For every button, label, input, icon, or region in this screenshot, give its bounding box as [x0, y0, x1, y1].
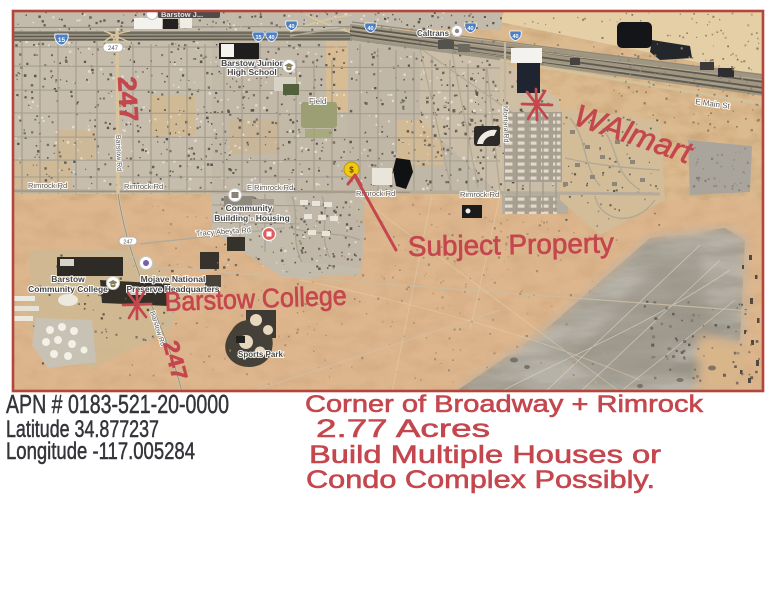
svg-text:2.77 Acres: 2.77 Acres — [316, 415, 490, 443]
svg-text:E Rimrock Rd: E Rimrock Rd — [247, 183, 293, 192]
svg-text:Montara Rd: Montara Rd — [501, 106, 509, 143]
svg-text:Field: Field — [309, 97, 326, 106]
svg-text:Mojave National: Mojave National — [141, 274, 206, 284]
svg-text:Community: Community — [226, 203, 273, 213]
svg-text:Rimrock Rd: Rimrock Rd — [124, 182, 163, 191]
svg-text:Rimrock Rd: Rimrock Rd — [460, 190, 499, 199]
svg-text:Barstow: Barstow — [51, 274, 85, 284]
svg-text:15: 15 — [58, 37, 66, 44]
svg-text:Barstow College: Barstow College — [164, 281, 347, 317]
svg-text:Barstow Rd: Barstow Rd — [114, 135, 122, 172]
svg-text:Sports Park: Sports Park — [238, 350, 283, 359]
svg-text:40: 40 — [467, 26, 473, 32]
svg-text:High School: High School — [227, 67, 277, 77]
svg-text:Community College: Community College — [28, 284, 108, 294]
svg-text:15: 15 — [255, 35, 261, 41]
svg-text:Condo Complex Possibly.: Condo Complex Possibly. — [306, 466, 655, 494]
svg-text:247: 247 — [112, 76, 144, 123]
svg-text:247: 247 — [123, 240, 132, 246]
svg-text:40: 40 — [367, 26, 373, 32]
svg-text:Longitude -117.005284: Longitude -117.005284 — [6, 438, 195, 465]
svg-text:Building - Housing: Building - Housing — [214, 213, 290, 223]
svg-text:Rimrock Rd: Rimrock Rd — [28, 181, 67, 190]
svg-text:40: 40 — [512, 34, 518, 40]
svg-text:Corner of Broadway + Rimrock: Corner of Broadway + Rimrock — [305, 391, 704, 418]
svg-text:40: 40 — [268, 35, 274, 41]
svg-text:40: 40 — [288, 24, 294, 30]
svg-text:Subject Property: Subject Property — [408, 227, 615, 262]
svg-text:Build Multiple Houses or: Build Multiple Houses or — [309, 441, 661, 469]
svg-text:APN # 0183-521-20-0000: APN # 0183-521-20-0000 — [6, 389, 229, 419]
svg-text:247: 247 — [108, 46, 119, 52]
svg-text:Caltrans: Caltrans — [417, 29, 450, 38]
svg-text:$: $ — [349, 166, 354, 175]
